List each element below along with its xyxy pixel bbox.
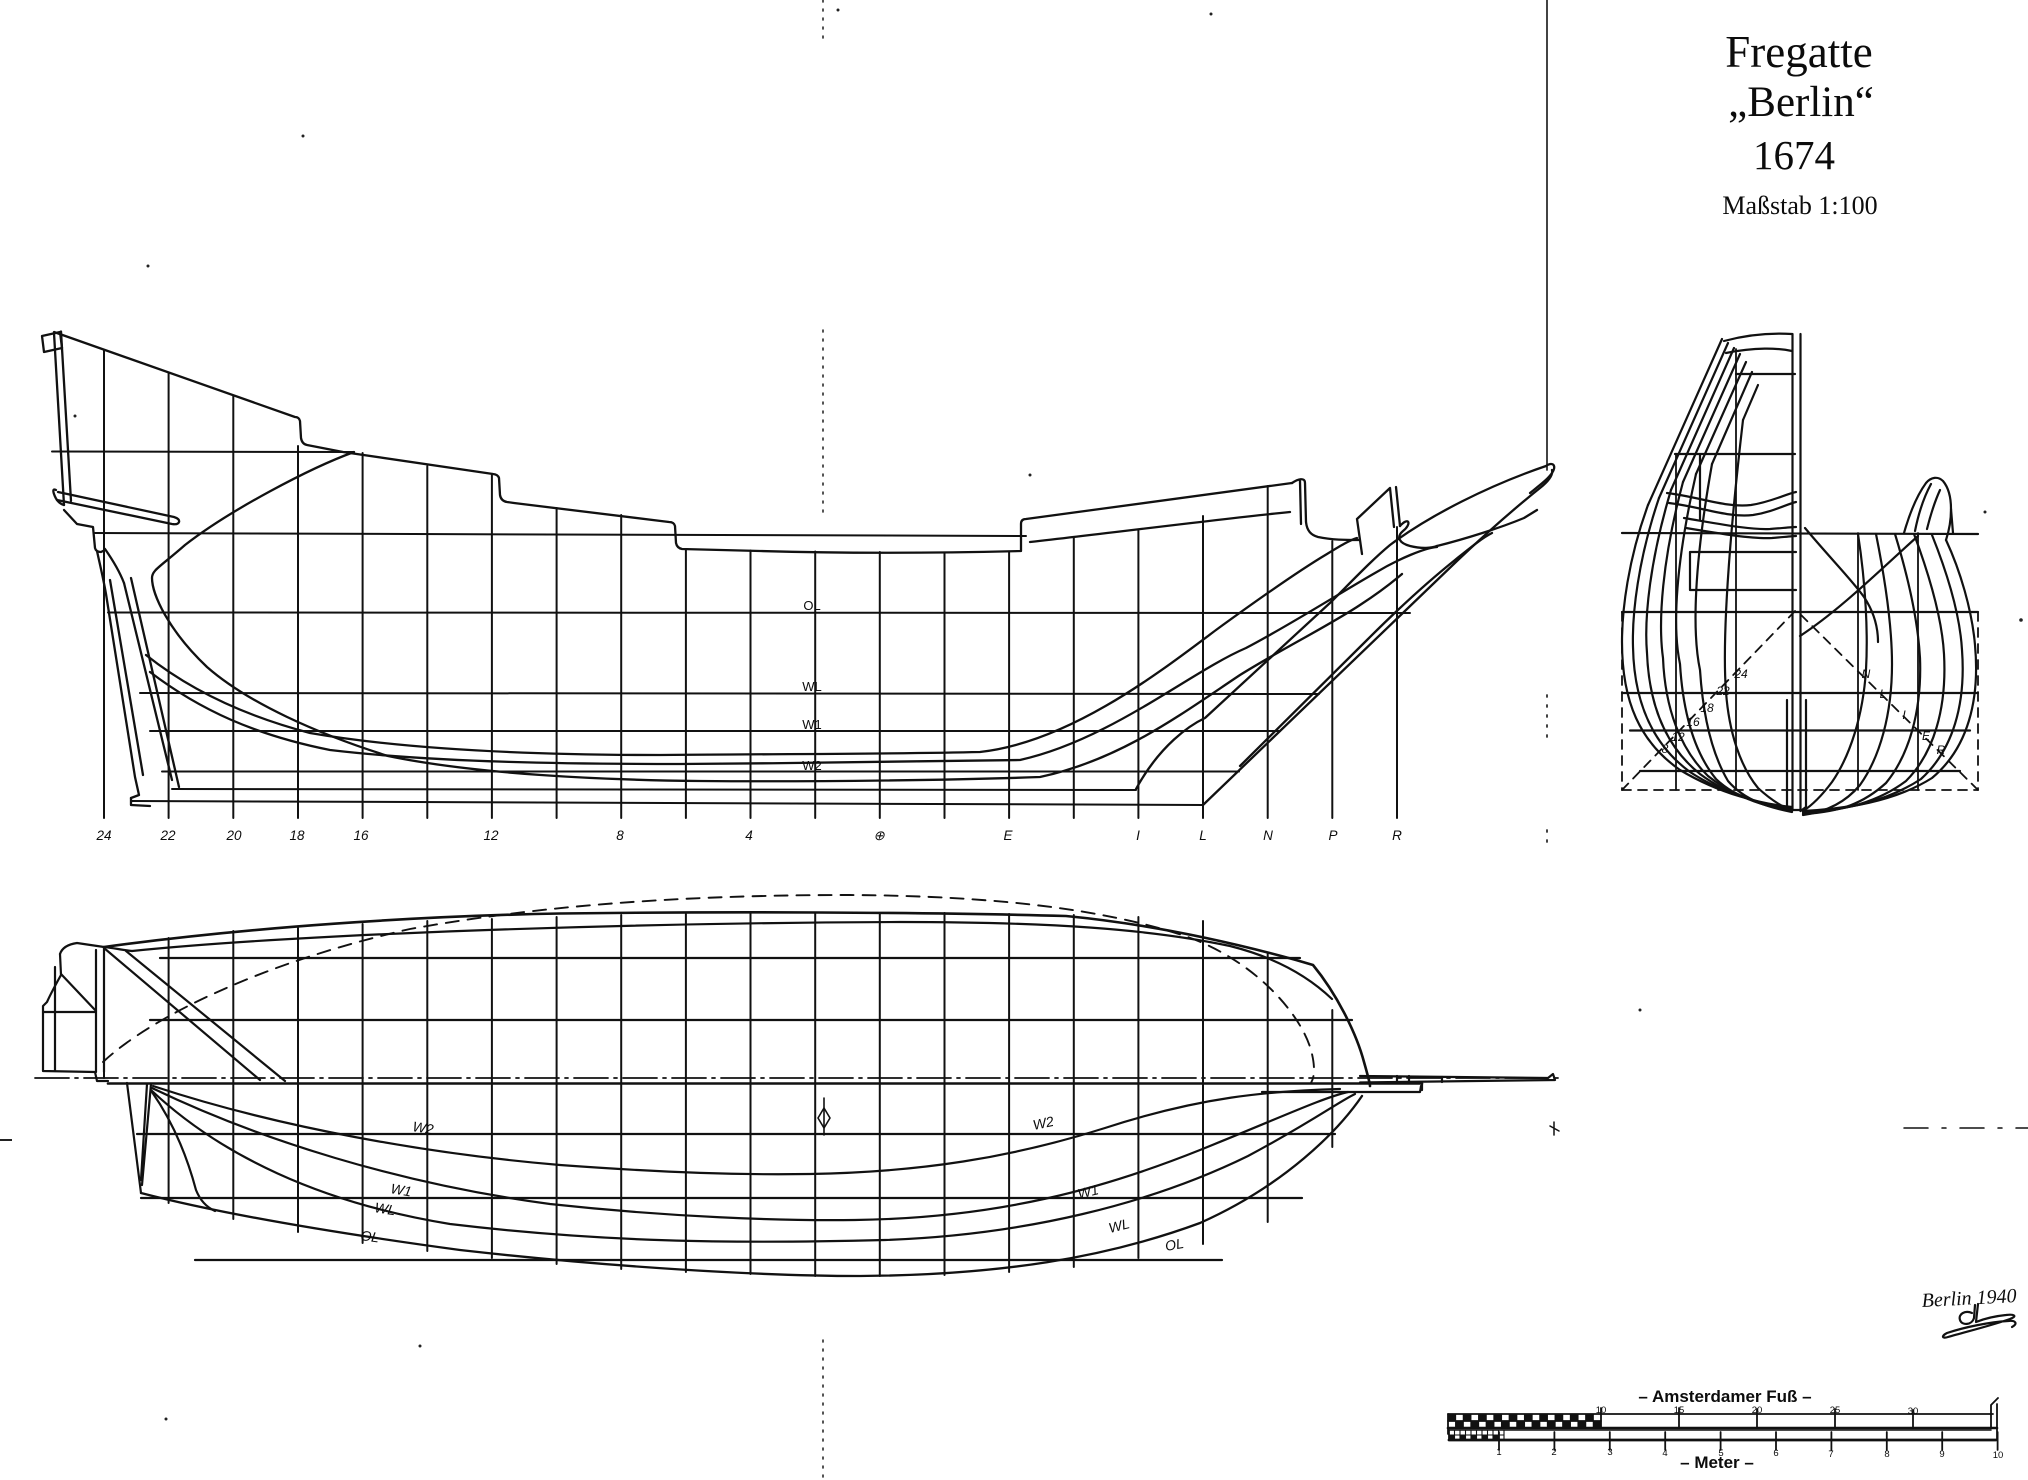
svg-text:10: 10 xyxy=(1993,1450,2004,1461)
svg-text:18: 18 xyxy=(1700,701,1714,715)
svg-text:OL: OL xyxy=(360,1227,381,1245)
svg-text:„Berlin“: „Berlin“ xyxy=(1728,79,1874,126)
svg-text:Maßstab 1:100: Maßstab 1:100 xyxy=(1722,191,1877,220)
svg-text:24: 24 xyxy=(1733,667,1748,681)
svg-text:18: 18 xyxy=(289,828,305,843)
svg-text:9: 9 xyxy=(1939,1449,1944,1460)
svg-text:E: E xyxy=(1003,828,1013,843)
svg-text:N: N xyxy=(1263,828,1273,843)
svg-text:16: 16 xyxy=(1686,715,1700,729)
svg-text:W1: W1 xyxy=(802,717,822,732)
svg-text:4: 4 xyxy=(1662,1448,1667,1459)
svg-text:25: 25 xyxy=(1830,1405,1841,1416)
svg-text:20: 20 xyxy=(1752,1405,1763,1416)
svg-text:1674: 1674 xyxy=(1753,132,1835,178)
svg-text:7: 7 xyxy=(1828,1449,1833,1460)
svg-text:⊕: ⊕ xyxy=(873,828,885,843)
svg-text:W1: W1 xyxy=(389,1180,412,1199)
svg-text:10: 10 xyxy=(1596,1405,1607,1416)
svg-text:15: 15 xyxy=(1674,1405,1685,1416)
svg-text:22: 22 xyxy=(1715,684,1730,698)
svg-text:– Amsterdamer Fuß –: – Amsterdamer Fuß – xyxy=(1638,1387,1811,1406)
svg-text:6: 6 xyxy=(1773,1448,1778,1459)
svg-text:12: 12 xyxy=(1671,730,1685,744)
svg-text:I: I xyxy=(1136,828,1140,843)
svg-text:OL: OL xyxy=(1164,1235,1185,1254)
svg-text:R: R xyxy=(1937,743,1946,757)
svg-text:Berlin 1940: Berlin 1940 xyxy=(1921,1285,2017,1312)
svg-text:8: 8 xyxy=(1662,742,1669,756)
svg-text:8: 8 xyxy=(616,828,624,843)
svg-text:WL: WL xyxy=(802,679,822,694)
svg-text:– Meter –: – Meter – xyxy=(1680,1453,1754,1472)
svg-text:L: L xyxy=(1880,687,1887,701)
svg-text:24: 24 xyxy=(95,828,111,843)
svg-text:WL: WL xyxy=(374,1199,397,1218)
svg-text:Fregatte: Fregatte xyxy=(1725,27,1872,77)
svg-text:L: L xyxy=(1199,828,1207,843)
svg-text:N: N xyxy=(1862,667,1871,681)
svg-text:30: 30 xyxy=(1908,1406,1919,1417)
svg-text:4: 4 xyxy=(745,828,753,843)
svg-text:W2: W2 xyxy=(1031,1113,1055,1133)
svg-text:W2: W2 xyxy=(412,1118,435,1137)
svg-text:R: R xyxy=(1392,828,1402,843)
svg-text:P: P xyxy=(1328,828,1337,843)
svg-text:12: 12 xyxy=(483,828,499,843)
svg-text:22: 22 xyxy=(159,828,176,843)
svg-text:16: 16 xyxy=(353,828,369,843)
svg-text:3: 3 xyxy=(1607,1447,1612,1458)
svg-text:OL: OL xyxy=(803,598,820,613)
svg-text:8: 8 xyxy=(1884,1449,1889,1460)
svg-text:20: 20 xyxy=(225,828,242,843)
svg-text:W2: W2 xyxy=(802,758,822,773)
svg-text:WL: WL xyxy=(1107,1215,1131,1236)
svg-text:2: 2 xyxy=(1551,1447,1556,1458)
svg-text:E: E xyxy=(1922,729,1931,743)
svg-text:I: I xyxy=(1902,708,1906,722)
svg-text:1: 1 xyxy=(1496,1447,1501,1458)
